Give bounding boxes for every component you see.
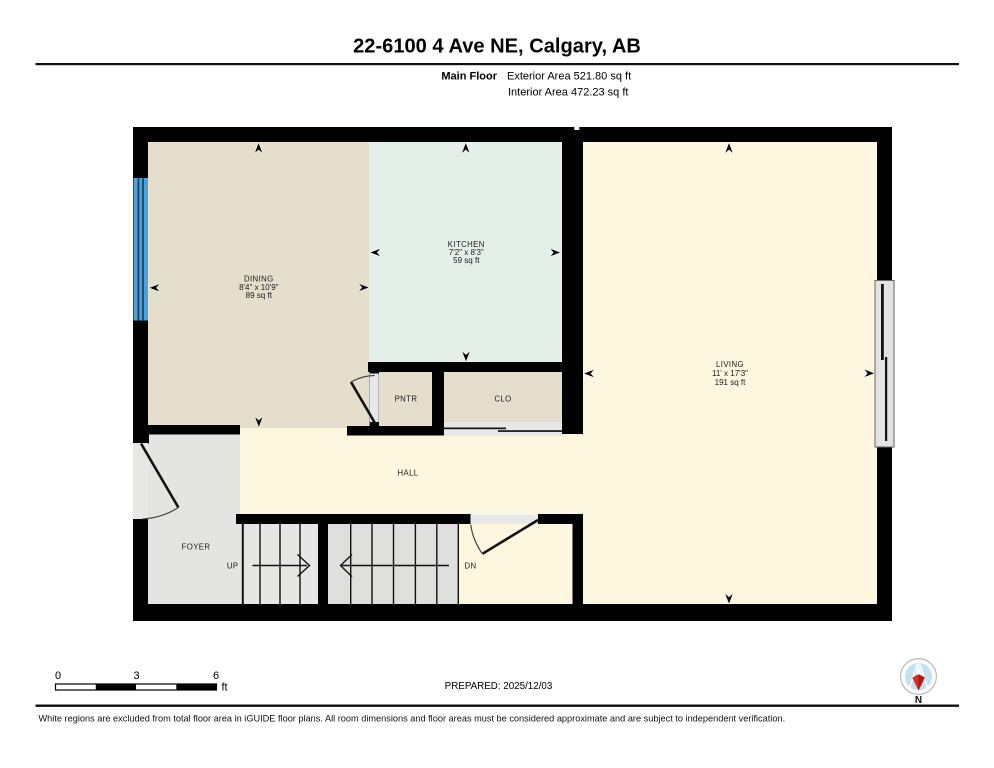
svg-text:ft: ft [222, 682, 228, 694]
svg-text:Exterior Area 521.80 sq ft: Exterior Area 521.80 sq ft [507, 71, 631, 83]
svg-text:White regions are excluded fro: White regions are excluded from total fl… [39, 714, 786, 724]
svg-text:LIVING: LIVING [716, 360, 744, 369]
svg-text:0: 0 [55, 670, 61, 682]
svg-text:22-6100 4 Ave NE, Calgary, AB: 22-6100 4 Ave NE, Calgary, AB [353, 36, 641, 58]
svg-text:191 sq ft: 191 sq ft [715, 378, 746, 387]
svg-text:HALL: HALL [397, 469, 418, 478]
svg-text:Main Floor: Main Floor [441, 71, 497, 83]
svg-text:CLO: CLO [494, 395, 511, 404]
svg-text:FOYER: FOYER [182, 543, 211, 552]
svg-text:89 sq ft: 89 sq ft [246, 291, 273, 300]
svg-text:6: 6 [213, 670, 219, 682]
svg-text:PREPARED: 2025/12/03: PREPARED: 2025/12/03 [445, 681, 553, 692]
svg-text:UP: UP [227, 561, 239, 570]
svg-text:PNTR: PNTR [395, 395, 418, 404]
svg-text:59 sq ft: 59 sq ft [453, 256, 480, 265]
svg-text:Interior Area 472.23 sq ft: Interior Area 472.23 sq ft [508, 87, 628, 99]
svg-text:3: 3 [133, 670, 139, 682]
svg-text:DN: DN [465, 561, 477, 570]
